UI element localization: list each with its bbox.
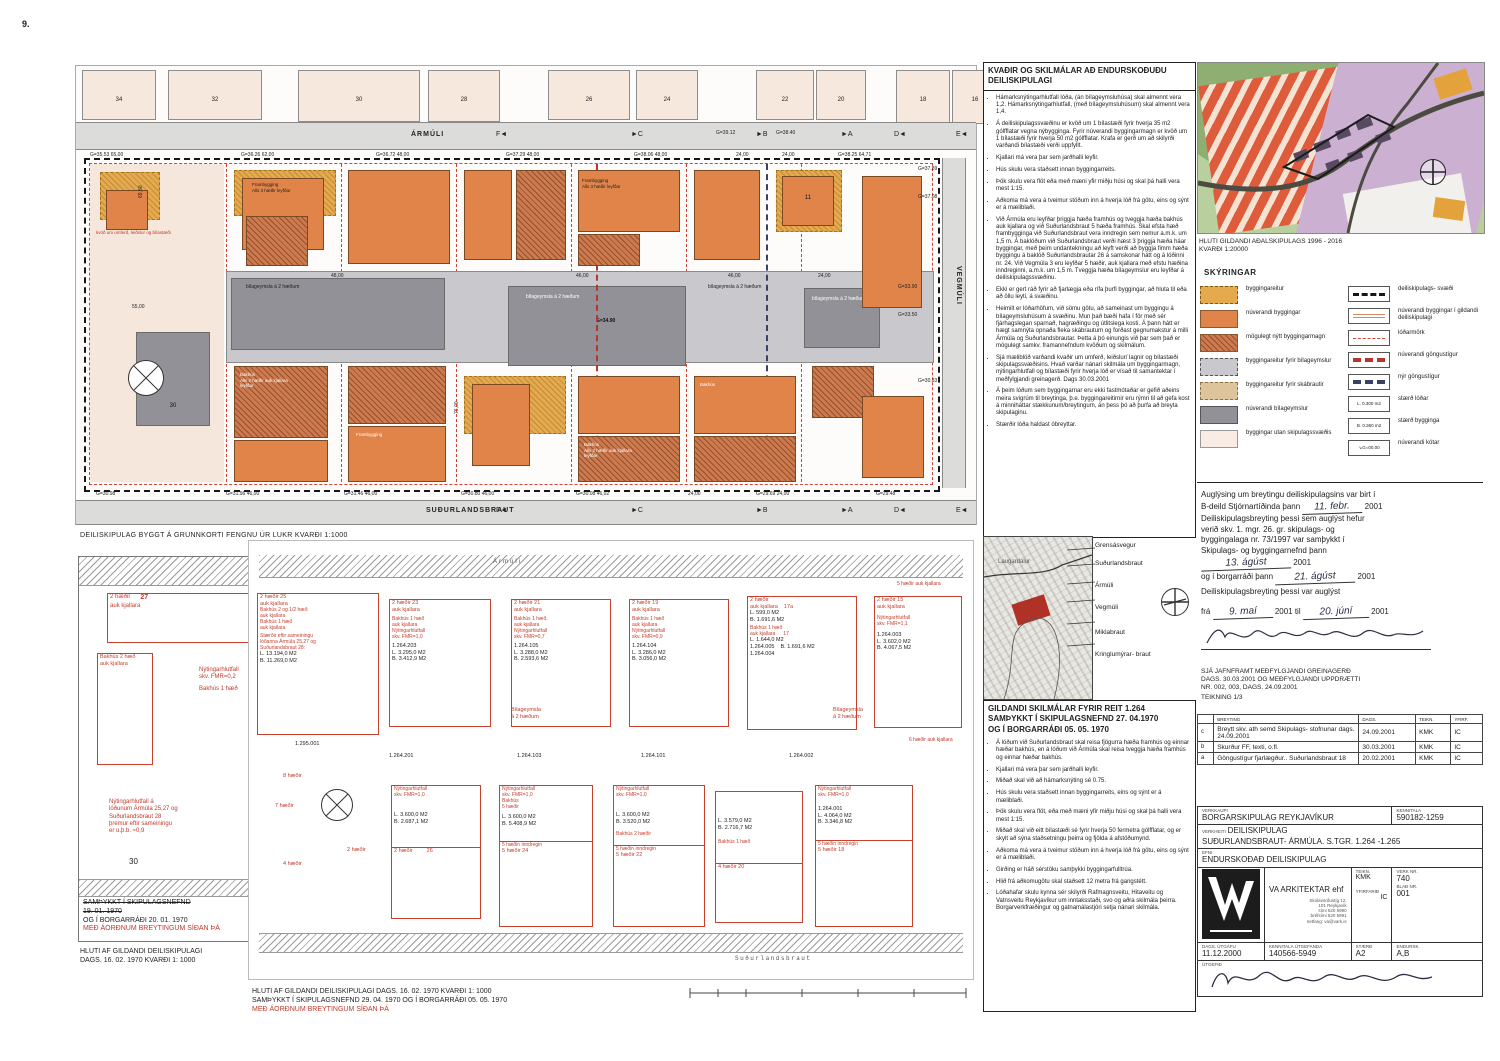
- divider: [1197, 482, 1483, 483]
- height-label: 7 hæðir: [275, 803, 294, 810]
- outside-building: 20: [816, 70, 866, 120]
- revised-site-plan: 34 32 30 28 26 24 22 20 18 16 ÁRMÚLI F◄ …: [75, 65, 977, 525]
- project-name-2: SUÐURLANDSBRAUT- ÁRMÚLA. S.TGR. 1.264 -1…: [1202, 837, 1400, 846]
- street-callout: Kringlumýrar- braut: [1095, 651, 1165, 659]
- bottom-plan-caption: HLUTI AF GILDANDI DEILISKIPULAGI DAGS. 1…: [252, 988, 507, 1014]
- adalskipulag-caption: HLUTI GILDANDI AÐALSKIPULAGS 1996 - 2016…: [1199, 238, 1342, 254]
- lot-23: 2 hæðir 23 auk kjallara Bakhús 1 hæð auk…: [389, 599, 491, 727]
- dimension: 76,00: [454, 401, 460, 414]
- client-id: 590182-1259: [1396, 813, 1443, 822]
- outside-building: 26: [548, 70, 630, 120]
- building-label: Alls 3 hæðir leyfðar: [582, 184, 626, 189]
- possible-new-building: [694, 436, 796, 482]
- project-number: 740: [1396, 874, 1409, 883]
- swatch-utan-svaedis: [1200, 430, 1238, 448]
- dimension: 55,00: [132, 304, 145, 310]
- swatch-nuverandi-i-gildandi: [1348, 308, 1390, 324]
- legend-item: lóðarmörk: [1348, 330, 1483, 346]
- legend-item: B. 0.360 m2stærð bygginga: [1348, 418, 1483, 434]
- lot-30-label: 30: [129, 857, 138, 867]
- legend-item: nýr göngustígur: [1348, 374, 1483, 390]
- sheet-number: 001: [1396, 889, 1409, 898]
- legend-item: núverandi bílageymslur: [1200, 406, 1346, 424]
- section-marker: ►B: [756, 131, 768, 140]
- building-label: Bakhús: [700, 382, 715, 387]
- section-marker: ►C: [631, 131, 643, 140]
- revision-code: A,B: [1396, 949, 1409, 958]
- section-marker: E◄: [956, 131, 968, 140]
- old-plan-1970: Ármúli 2 hæðir 25 auk kjallara Bakhús 2 …: [248, 540, 974, 980]
- legend-item: byggingareitur fyrir skábrautir: [1200, 382, 1346, 400]
- revision-row: b Skurður FF, texti, o.fl. 30.03.2001 KM…: [1198, 742, 1483, 753]
- architect-firm: VA ARKITEKTAR ehf: [1269, 885, 1347, 895]
- parcel-number: 1.264.101: [641, 753, 665, 760]
- outside-building: 32: [168, 70, 262, 120]
- street-label-sudurlandsbraut-old: Suðurlandsbraut: [735, 955, 812, 962]
- dimension: G=33.90: [898, 284, 917, 290]
- signature: [1202, 967, 1442, 993]
- building-label: Frambygging: [356, 432, 382, 437]
- dimension: G=30.08 46,02: [576, 491, 609, 497]
- building-label: Alls 2 hæðir auk kjallara leyfðar: [584, 448, 644, 458]
- extra-note: 6 hæðir auk kjallara: [909, 737, 969, 743]
- section-marker: ►A: [841, 131, 853, 140]
- swatch-nyr-gongustigur: [1348, 374, 1390, 390]
- sja-note: SJÁ JAFNFRAMT MEÐFYLGJANDI GREINAGERÐ DA…: [1201, 668, 1483, 703]
- existing-building: [234, 440, 328, 482]
- swatch-nuverandi-kotar: ↘G=00.00: [1348, 440, 1390, 456]
- gildandi-title: GILDANDI SKILMÁLAR FYRIR REIT 1.264 SAMÞ…: [984, 701, 1195, 738]
- dimension: G=30.33: [918, 378, 937, 384]
- possible-new-building: [578, 234, 640, 266]
- handwritten-date: 11. febr.: [1302, 499, 1362, 515]
- parcel-number: 1.264.201: [389, 753, 413, 760]
- height-label: 2 hæðir: [347, 847, 366, 854]
- section-marker: F◄: [496, 507, 507, 516]
- spot-elevation: G=34.90: [596, 318, 615, 324]
- section-marker: F◄: [496, 131, 507, 140]
- legend-right-column: deiliskipulags- svæði núverandi bygginga…: [1348, 286, 1483, 462]
- possible-new-building: [246, 216, 308, 266]
- possible-new-building: [348, 366, 446, 424]
- swatch-staerd-bygginga: B. 0.360 m2: [1348, 418, 1390, 434]
- dimension: G=31.96 46,00: [226, 491, 259, 497]
- note: kvöð um umferð, leiðslur og bílastæði: [96, 230, 182, 235]
- lot-15: 2 hæðir 15 auk kjallara Nýtingarhlutfall…: [874, 596, 962, 728]
- lot-22: Nýtingarhlutfall skv. FMR=1,0 L. 3.600,0…: [613, 785, 705, 927]
- existing-building: [578, 376, 680, 434]
- existing-building: [862, 396, 924, 478]
- building-label: Alls 2 hæðir auk kjallara leyfðar: [240, 378, 300, 388]
- swatch-mogulegt-nytt: [1200, 334, 1238, 352]
- parcel-number: 1.264.103: [517, 753, 541, 760]
- legend-item: deiliskipulags- svæði: [1348, 286, 1483, 302]
- parcel-number: 1.295.001: [295, 741, 319, 748]
- swatch-deiliskipulagssvaedi: [1348, 286, 1390, 302]
- building-label: Bakhús: [240, 372, 255, 377]
- legend-title: SKÝRINGAR: [1204, 268, 1257, 278]
- swatch-reitur-bilageymslur: [1200, 358, 1238, 376]
- title-block: VERKKAUPIBORGARSKIPULAG REYKJAVÍKUR KENN…: [1197, 806, 1483, 997]
- dimension: G=30.98: [96, 491, 115, 497]
- dimension: G=37.89: [918, 166, 937, 172]
- existing-building: [472, 384, 530, 466]
- sheet-size: A2: [1356, 949, 1366, 958]
- street-callout: Grensásvegur: [1095, 542, 1194, 550]
- circle-x-symbol: [321, 789, 353, 821]
- swatch-nuverandi-gongustigur: [1348, 352, 1390, 368]
- swatch-nuverandi-byggingar: [1200, 310, 1238, 328]
- street-label-armuli-old: Ármúli: [493, 559, 522, 566]
- adalskipulag-map: [1197, 62, 1485, 234]
- section-marker: D◄: [894, 507, 906, 516]
- handwritten-date: 13. ágúst: [1201, 554, 1291, 571]
- revision-header: BREYTING DAGS. TEIKN. YFIRF.: [1198, 715, 1483, 724]
- existing-building: [348, 170, 450, 264]
- height-label: 4 hæðir: [283, 861, 302, 868]
- client-name: BORGARSKIPULAG REYKJAVÍKUR: [1202, 813, 1334, 822]
- legend-left-column: byggingareitur núverandi byggingar mögul…: [1200, 286, 1346, 454]
- outside-building: 24: [636, 70, 698, 120]
- outside-building: 28: [428, 70, 500, 122]
- issue-date: 11.12.2000: [1202, 949, 1241, 958]
- dimension: G=31.46 46,00: [344, 491, 377, 497]
- section-marker: D◄: [894, 131, 906, 140]
- lot-25: 2 hæðir 25 auk kjallara Bakhús 2 og 1/2 …: [257, 593, 379, 735]
- swatch-reitur-skabrautir: [1200, 382, 1238, 400]
- lot-27-bakhus: Bakhús 2 hæð auk kjallara: [97, 653, 153, 765]
- dimension: G=29.48: [876, 491, 895, 497]
- circle-x-symbol: [128, 360, 164, 396]
- legend-item: ↘G=00.00núverandi kótar: [1348, 440, 1483, 456]
- issuer-id: 140566-5949: [1269, 949, 1316, 958]
- project-name: DEILISKIPULAG: [1228, 826, 1288, 835]
- lot-19: 2 hæðir 19 auk kjallara Bakhús 1 hæð auk…: [629, 599, 729, 727]
- dimension: 46,00: [576, 273, 589, 279]
- street-callout: Suðurlandsbraut: [1095, 560, 1194, 568]
- dimension: 69,50: [138, 185, 144, 198]
- auglysing-block: Auglýsing um breytingu deiliskipulagsins…: [1201, 490, 1483, 654]
- garage-label: bílageymsla á 2 hæðum: [708, 284, 764, 290]
- dimension: 46,00: [728, 273, 741, 279]
- street-label-armuli: ÁRMÚLI: [411, 131, 444, 140]
- existing-building: 11: [782, 176, 834, 226]
- lot-27-fmr: Nýtingarhlutfall skv. FMR=0,2 Bakhús 1 h…: [199, 667, 239, 693]
- left-old-caption: HLUTI AF GILDANDI DEILISKIPULAGI DAGS. 1…: [80, 948, 202, 966]
- existing-building: [694, 170, 760, 260]
- handwritten-date: 20. júní: [1303, 604, 1369, 620]
- checked-by: IC: [1356, 894, 1388, 903]
- street-sudurlandsbraut: SUÐURLANDSBRAUT F◄ ►C ►B ►A D◄ E◄: [76, 500, 976, 525]
- lot-24: Nýtingarhlutfall skv. FMR=1,0 Bakhús 5 h…: [499, 785, 593, 927]
- revision-row: a Göngustígur fjarlægður.. Suðurlandsbra…: [1198, 753, 1483, 764]
- legend-item: núverandi byggingar í gildandi deiliskip…: [1348, 308, 1483, 324]
- legend-item: núverandi byggingar: [1200, 310, 1346, 328]
- page-number: 9.: [22, 18, 30, 30]
- firm-address: Skólavörðustíg 12, 101 Reykjavík sími 52…: [1269, 898, 1347, 924]
- section-marker: E◄: [956, 507, 968, 516]
- map-roads: [1198, 63, 1484, 233]
- plan-sheet: 9. 34 32 30 28 26 24 22 20 18 16 ÁRMÚLI …: [0, 0, 1500, 1061]
- signature: [1201, 623, 1431, 650]
- building-label: Frambygging: [252, 182, 278, 187]
- street-vegmuli: [942, 158, 966, 488]
- dimension: G=37.08: [918, 194, 937, 200]
- kvadir-title: KVAÐIR OG SKILMÁLAR AÐ ENDURSKOÐUÐU DEIL…: [984, 63, 1195, 91]
- gildandi-panel: GILDANDI SKILMÁLAR FYRIR REIT 1.264 SAMÞ…: [983, 700, 1196, 1012]
- compass-icon: [1420, 159, 1446, 185]
- revision-table: BREYTING DAGS. TEIKN. YFIRF. c Breytt sk…: [1197, 714, 1483, 765]
- swatch-lodarmork: [1348, 330, 1390, 346]
- legend-item: byggingareitur fyrir bílageymslur: [1200, 358, 1346, 376]
- swatch-byggingareitur: [1200, 286, 1238, 304]
- outside-building: 18: [896, 70, 950, 124]
- dimension: 24,00: [818, 273, 831, 279]
- title-block-table: VERKKAUPIBORGARSKIPULAG REYKJAVÍKUR KENN…: [1197, 806, 1483, 997]
- section-marker: ►C: [631, 507, 643, 516]
- gildandi-bullets: Á lóðum við Suðurlandsbraut skal reisa f…: [984, 740, 1195, 912]
- legend-item: núverandi göngustígur: [1348, 352, 1483, 368]
- outside-building: 34: [82, 70, 156, 120]
- legend-item: byggingar utan skipulagssvæðis: [1200, 430, 1346, 448]
- dimension: G=33.50: [898, 312, 917, 318]
- kvadir-bullets: Hámarksnýtingarhlutfall lóða, (án bílage…: [984, 95, 1195, 430]
- swatch-staerd-lodar: L. 0.300 m2: [1348, 396, 1390, 412]
- new-path: [766, 164, 768, 482]
- outside-building: 30: [298, 70, 420, 122]
- street-hatch: [259, 933, 963, 953]
- possible-new-building: [516, 170, 566, 260]
- street-hatch: [259, 555, 963, 578]
- garage-label: bílageymsla á 2 hæðum: [246, 284, 302, 290]
- garage-label: bílageymsla á 2 hæðum: [526, 294, 582, 300]
- building-label: Bakhús: [584, 442, 599, 447]
- scale-bar: [688, 986, 968, 1000]
- garage-label: bílageymsla á 2 hæðum: [812, 296, 868, 302]
- location-map-panel: Laugardalur Grensásvegur Suðurlandsbraut…: [983, 536, 1194, 698]
- street-armuli: ÁRMÚLI F◄ ►C ►B ►A D◄ E◄: [76, 122, 976, 150]
- street-callout: Miklabraut: [1095, 629, 1194, 637]
- dimension: 48,00: [331, 273, 344, 279]
- dimension: G=39.12: [716, 130, 735, 136]
- revision-row: c Breytt skv. ath semd Skipulags- stofnu…: [1198, 724, 1483, 742]
- dimension: G=29.69 24,00: [756, 491, 789, 497]
- legend-item: L. 0.300 m2stærð lóðar: [1348, 396, 1483, 412]
- drawn-by: KMK: [1356, 874, 1371, 881]
- lot-20: L. 3.579,0 M2 B. 2.716,7 M2 Bakhús 1 hæð…: [715, 791, 803, 923]
- garage-note: Bílageymslaá 2 hæðum: [833, 707, 863, 720]
- compass-icon: [1161, 588, 1189, 616]
- dimension: 24,00: [688, 491, 701, 497]
- lot-18: Nýtingarhlutfall skv. FMR=1,0 1.264.001 …: [815, 785, 913, 927]
- sheet-subject: ENDURSKOÐAÐ DEILISKIPULAG: [1202, 855, 1326, 864]
- extra-note: 5 hæðir auk kjallara: [897, 581, 957, 587]
- dimension: G=30.80 46,00: [461, 491, 494, 497]
- handwritten-date: 9. maí: [1212, 604, 1272, 620]
- lot-26: Nýtingarhlutfall skv. FMR=1,0 L. 3.600,0…: [391, 785, 481, 919]
- va-logo: [1202, 869, 1260, 939]
- sameining-note: Nýtingarhlutfall á lóðunum Ármúla 25,27 …: [109, 799, 178, 836]
- building-label: Alls 3 hæðir leyfðar: [252, 188, 296, 193]
- building-label: Frambygging: [582, 178, 608, 183]
- garage-note: Bílageymslaá 2 hæðum: [511, 707, 541, 720]
- section-marker: ►B: [756, 507, 768, 516]
- legend-item: mögulegt nýtt byggingarmagn: [1200, 334, 1346, 352]
- left-lot-area: kvöð um umferð, leiðslur og bílastæði 30…: [90, 164, 224, 482]
- dimension: G=38.40: [776, 130, 795, 136]
- street-label-vegmuli: VEGMÚLI: [953, 266, 962, 305]
- kvadir-panel: KVAÐIR OG SKILMÁLAR AÐ ENDURSKOÐUÐU DEIL…: [983, 62, 1196, 538]
- section-marker: ►A: [841, 507, 853, 516]
- handwritten-date: 21. ágúst: [1275, 569, 1355, 586]
- parcel-number: 1.264.002: [789, 753, 813, 760]
- existing-building: [464, 170, 512, 260]
- outside-building: 22: [756, 70, 814, 120]
- legend-item: byggingareitur: [1200, 286, 1346, 304]
- height-label: 8 hæðir: [283, 773, 302, 780]
- swatch-nuverandi-bilageymslur: [1200, 406, 1238, 424]
- callout-leaders: [1067, 544, 1097, 694]
